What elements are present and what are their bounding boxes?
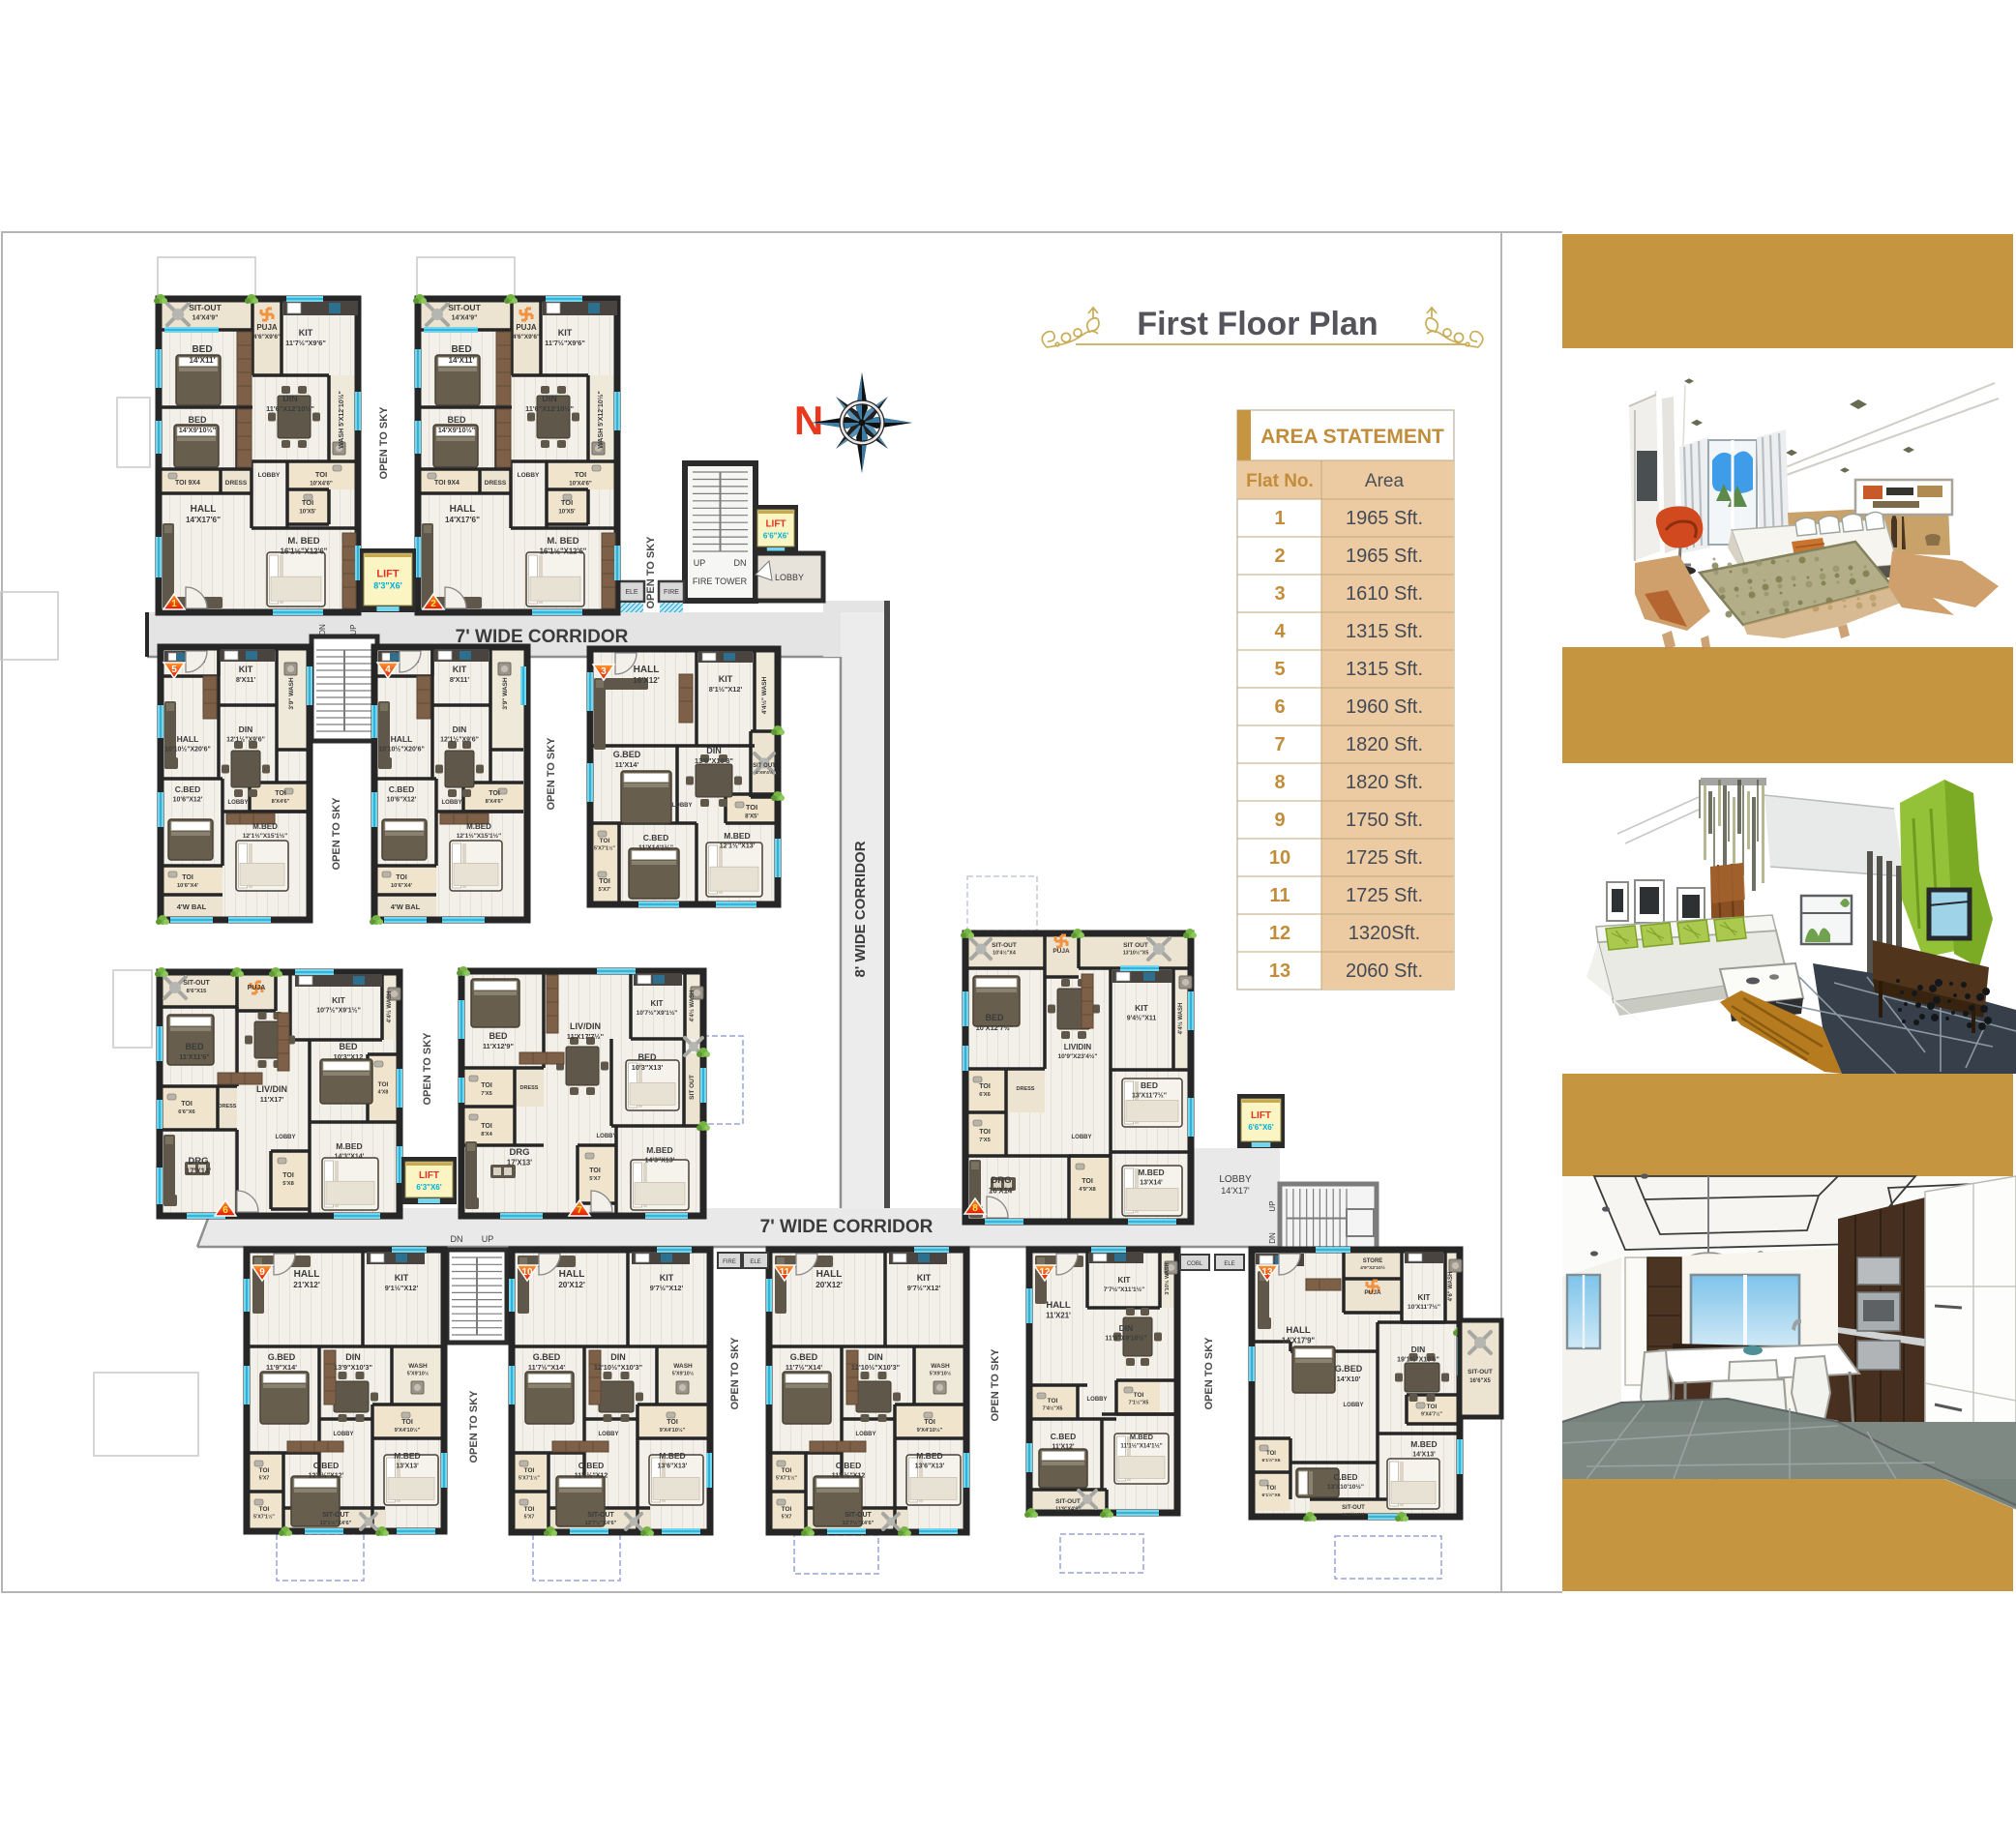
svg-text:SIT-OUT: SIT-OUT xyxy=(183,980,210,987)
svg-text:6'X6: 6'X6 xyxy=(979,1092,991,1098)
svg-text:AREA STATEMENT: AREA STATEMENT xyxy=(1260,426,1444,448)
svg-text:SIT OUT: SIT OUT xyxy=(753,763,776,769)
svg-text:PUJA: PUJA xyxy=(1052,948,1070,955)
svg-text:TOI: TOI xyxy=(1082,1178,1093,1185)
svg-text:BED: BED xyxy=(185,1042,204,1051)
svg-text:C.BED: C.BED xyxy=(175,784,200,794)
svg-text:DN: DN xyxy=(451,1234,463,1244)
svg-text:OPEN TO SKY: OPEN TO SKY xyxy=(1203,1337,1215,1410)
svg-text:TOI: TOI xyxy=(481,1123,492,1130)
svg-text:TOI: TOI xyxy=(924,1419,935,1426)
svg-text:HALL: HALL xyxy=(294,1269,320,1280)
svg-text:9'X4'10½": 9'X4'10½" xyxy=(917,1427,943,1434)
svg-text:TOI: TOI xyxy=(1266,1486,1276,1492)
svg-text:1320Sft.: 1320Sft. xyxy=(1349,923,1421,944)
svg-text:LIVIDIN: LIVIDIN xyxy=(1064,1043,1092,1051)
svg-text:12'10½"X10'3": 12'10½"X10'3" xyxy=(851,1363,901,1372)
svg-text:LIV/DIN: LIV/DIN xyxy=(256,1084,287,1094)
svg-text:9'7½"X12': 9'7½"X12' xyxy=(907,1284,941,1292)
svg-text:TOI: TOI xyxy=(575,470,586,479)
svg-text:KIT: KIT xyxy=(1418,1293,1431,1302)
svg-text:C.BED: C.BED xyxy=(643,833,668,843)
svg-text:TOI: TOI xyxy=(401,1419,413,1426)
svg-text:N: N xyxy=(794,398,823,443)
svg-text:8'X4: 8'X4 xyxy=(481,1132,492,1138)
svg-text:4'4½ WASH: 4'4½ WASH xyxy=(386,991,393,1023)
svg-text:5: 5 xyxy=(1274,659,1285,680)
svg-text:TOI: TOI xyxy=(1134,1392,1144,1399)
svg-text:4'4½ WASH: 4'4½ WASH xyxy=(1177,1003,1184,1035)
svg-text:M.BED: M.BED xyxy=(1410,1439,1437,1449)
svg-text:10'6"X12': 10'6"X12' xyxy=(173,797,203,804)
svg-text:M.BED: M.BED xyxy=(466,822,491,831)
svg-text:12'1½"X12': 12'1½"X12' xyxy=(309,1472,344,1480)
svg-text:3'9" WASH: 3'9" WASH xyxy=(288,677,295,709)
svg-text:10'X4'6": 10'X4'6" xyxy=(310,481,333,488)
svg-text:10'6"X4': 10'6"X4' xyxy=(391,883,413,889)
svg-text:TOI: TOI xyxy=(589,1168,601,1174)
svg-text:14'3"X14': 14'3"X14' xyxy=(335,1154,365,1161)
svg-text:11'7½"X9'6": 11'7½"X9'6" xyxy=(285,339,326,347)
svg-text:11'X21': 11'X21' xyxy=(1046,1312,1071,1320)
svg-text:9'7½"X12': 9'7½"X12' xyxy=(650,1284,684,1292)
svg-text:FIRE: FIRE xyxy=(664,589,679,596)
svg-text:DIN: DIN xyxy=(345,1352,361,1362)
svg-text:LOBBY: LOBBY xyxy=(599,1432,619,1437)
svg-text:12'1½"X15'1½": 12'1½"X15'1½" xyxy=(457,832,501,840)
svg-text:10'X11'7½": 10'X11'7½" xyxy=(1408,1303,1440,1311)
svg-text:13'10½"X5: 13'10½"X5 xyxy=(1123,950,1149,957)
svg-text:LOBBY: LOBBY xyxy=(775,573,804,582)
svg-text:ELE: ELE xyxy=(625,589,638,596)
svg-text:C.BED: C.BED xyxy=(578,1461,604,1470)
svg-text:16'X14': 16'X14' xyxy=(989,1187,1014,1196)
svg-text:4'6" WASH: 4'6" WASH xyxy=(1448,1272,1454,1302)
svg-text:M.BED: M.BED xyxy=(336,1141,362,1151)
svg-text:DRG: DRG xyxy=(188,1156,208,1167)
svg-text:M.BED: M.BED xyxy=(394,1451,420,1461)
svg-text:8'X5': 8'X5' xyxy=(745,813,758,820)
svg-text:DIN: DIN xyxy=(706,746,722,755)
svg-text:BED: BED xyxy=(637,1052,657,1062)
svg-text:7'4½"X5: 7'4½"X5 xyxy=(1043,1405,1063,1412)
svg-text:UP: UP xyxy=(349,624,358,635)
svg-text:17'X13': 17'X13' xyxy=(507,1159,532,1168)
svg-text:3'10½ WASH: 3'10½ WASH xyxy=(1164,1262,1171,1294)
svg-text:8'X4'6": 8'X4'6" xyxy=(486,799,504,805)
svg-text:12'1½"X13': 12'1½"X13' xyxy=(720,843,756,850)
svg-text:11'X12': 11'X12' xyxy=(1052,1444,1074,1451)
svg-text:DN: DN xyxy=(318,624,327,636)
svg-text:TOI 9X4: TOI 9X4 xyxy=(175,480,200,487)
svg-text:UP: UP xyxy=(1268,1200,1277,1211)
svg-text:14'X9'10½": 14'X9'10½" xyxy=(438,426,476,434)
svg-text:DRESS: DRESS xyxy=(219,1104,237,1109)
svg-text:DIN: DIN xyxy=(1119,1323,1134,1333)
svg-text:1960 Sft.: 1960 Sft. xyxy=(1346,696,1423,718)
svg-text:M.BED: M.BED xyxy=(1138,1168,1164,1177)
svg-text:TOI: TOI xyxy=(275,790,286,797)
svg-text:C.BED: C.BED xyxy=(313,1461,339,1470)
svg-text:9: 9 xyxy=(259,1267,265,1278)
svg-text:SIT-OUT: SIT-OUT xyxy=(587,1512,614,1519)
svg-text:14'X4'9": 14'X4'9" xyxy=(193,315,219,322)
svg-text:14'X17'6": 14'X17'6" xyxy=(445,516,480,524)
svg-text:M.BED: M.BED xyxy=(646,1145,672,1155)
svg-text:C.BED: C.BED xyxy=(1334,1473,1358,1482)
svg-text:DN: DN xyxy=(1268,1232,1277,1244)
svg-text:Flat No.: Flat No. xyxy=(1246,471,1314,491)
svg-text:LOBBY: LOBBY xyxy=(518,472,540,479)
svg-text:2: 2 xyxy=(430,599,436,609)
svg-text:BED: BED xyxy=(188,415,207,425)
svg-text:1: 1 xyxy=(171,599,177,609)
svg-text:11'1½"X12: 11'1½"X12 xyxy=(832,1472,866,1480)
svg-text:10'X4'6": 10'X4'6" xyxy=(569,481,592,488)
svg-text:7'1½"X5: 7'1½"X5 xyxy=(1129,1400,1149,1406)
svg-text:4: 4 xyxy=(1274,621,1286,642)
svg-text:6'6"X6': 6'6"X6' xyxy=(1248,1123,1273,1132)
svg-text:12'7½"X4'6": 12'7½"X4'6" xyxy=(843,1520,875,1526)
svg-text:1820 Sft.: 1820 Sft. xyxy=(1346,734,1423,755)
svg-text:LIFT: LIFT xyxy=(376,569,399,580)
svg-text:LOBBY: LOBBY xyxy=(442,800,462,806)
svg-text:13: 13 xyxy=(1261,1267,1273,1278)
svg-text:7' WIDE CORRIDOR: 7' WIDE CORRIDOR xyxy=(760,1217,934,1237)
svg-text:13'6"X13': 13'6"X13' xyxy=(915,1463,945,1470)
svg-text:10'3"X13': 10'3"X13' xyxy=(632,1063,664,1072)
svg-text:TOI: TOI xyxy=(667,1419,678,1426)
svg-text:TOI: TOI xyxy=(282,1172,294,1179)
svg-text:16'1½"X12'6": 16'1½"X12'6" xyxy=(281,547,328,556)
svg-text:DIN: DIN xyxy=(239,724,253,734)
svg-text:TOI: TOI xyxy=(1266,1451,1276,1457)
svg-text:8'X4'6": 8'X4'6" xyxy=(272,799,290,805)
svg-text:SIT-OUT: SIT-OUT xyxy=(448,303,481,312)
svg-text:FIRE: FIRE xyxy=(723,1259,736,1265)
svg-text:TOI: TOI xyxy=(782,1506,792,1513)
svg-text:DIN: DIN xyxy=(542,394,557,403)
svg-text:9'X4'7½": 9'X4'7½" xyxy=(1421,1411,1442,1418)
svg-text:10: 10 xyxy=(1269,847,1290,869)
svg-text:12'1½"X4'6": 12'1½"X4'6" xyxy=(320,1520,352,1526)
svg-text:BED: BED xyxy=(339,1042,358,1051)
svg-text:4'W BAL: 4'W BAL xyxy=(177,902,207,911)
svg-text:6: 6 xyxy=(1274,696,1285,718)
svg-text:12'1½"X9'6": 12'1½"X9'6" xyxy=(226,736,265,744)
svg-text:OPEN TO SKY: OPEN TO SKY xyxy=(645,536,657,609)
svg-text:8: 8 xyxy=(972,1203,978,1214)
svg-text:SIT OUT: SIT OUT xyxy=(689,1075,696,1100)
svg-text:TOI: TOI xyxy=(524,1506,535,1513)
svg-text:20'X12': 20'X12' xyxy=(815,1281,843,1289)
svg-text:First Floor Plan: First Floor Plan xyxy=(1137,306,1378,342)
svg-text:13'6"X13': 13'6"X13' xyxy=(658,1463,688,1470)
svg-text:10'X5': 10'X5' xyxy=(299,509,316,516)
svg-text:KIT: KIT xyxy=(719,674,733,684)
svg-text:9'X4'10½": 9'X4'10½" xyxy=(660,1427,686,1434)
svg-text:9'1½"X12': 9'1½"X12' xyxy=(385,1284,419,1292)
svg-text:TOI: TOI xyxy=(561,498,573,507)
svg-text:1610 Sft.: 1610 Sft. xyxy=(1346,583,1423,605)
svg-text:11'X14': 11'X14' xyxy=(615,760,639,769)
svg-text:OPEN TO SKY: OPEN TO SKY xyxy=(468,1390,480,1463)
svg-text:7'7½"X11'1½": 7'7½"X11'1½" xyxy=(1104,1286,1144,1293)
svg-text:TOI: TOI xyxy=(489,790,500,797)
svg-text:BED: BED xyxy=(451,344,471,355)
svg-text:TOI: TOI xyxy=(396,874,407,881)
svg-text:10'7½"X9'1½": 10'7½"X9'1½" xyxy=(637,1009,678,1017)
svg-text:TOI 9X4: TOI 9X4 xyxy=(434,480,460,487)
svg-text:16'1½"X12'6": 16'1½"X12'6" xyxy=(540,547,587,556)
svg-text:20'X12': 20'X12' xyxy=(558,1281,585,1289)
svg-text:LIFT: LIFT xyxy=(419,1170,439,1181)
svg-text:11'X17': 11'X17' xyxy=(260,1095,284,1104)
svg-text:4'9"X8: 4'9"X8 xyxy=(1079,1187,1096,1193)
svg-text:G.BED: G.BED xyxy=(613,750,641,759)
svg-text:DRESS: DRESS xyxy=(1017,1086,1035,1092)
svg-text:5'X7'1½": 5'X7'1½" xyxy=(253,1514,275,1521)
svg-text:LIFT: LIFT xyxy=(765,519,786,530)
svg-text:11'7½"X14': 11'7½"X14' xyxy=(786,1363,822,1372)
svg-text:4'6"X9'6": 4'6"X9'6" xyxy=(513,334,540,340)
svg-text:14'X10': 14'X10' xyxy=(1337,1375,1361,1383)
svg-text:DRG: DRG xyxy=(509,1147,529,1158)
svg-text:TOI: TOI xyxy=(182,874,193,881)
svg-text:11'9"X14': 11'9"X14' xyxy=(266,1363,297,1372)
svg-text:14'X17'6": 14'X17'6" xyxy=(186,516,221,524)
svg-text:13'X11'7½": 13'X11'7½" xyxy=(1132,1092,1167,1100)
svg-text:10'4½"X4: 10'4½"X4 xyxy=(993,950,1016,957)
svg-text:7'X5: 7'X5 xyxy=(481,1091,492,1097)
svg-text:BED: BED xyxy=(985,1013,1004,1022)
svg-text:KIT: KIT xyxy=(299,328,313,338)
svg-text:1315 Sft.: 1315 Sft. xyxy=(1346,621,1423,642)
svg-text:LOBBY: LOBBY xyxy=(276,1135,296,1140)
svg-text:WASH 5'X12'10½": WASH 5'X12'10½" xyxy=(597,391,605,449)
svg-text:M.BED: M.BED xyxy=(1130,1433,1154,1441)
svg-text:1750 Sft.: 1750 Sft. xyxy=(1346,810,1423,831)
svg-text:COBL: COBL xyxy=(1187,1261,1203,1267)
svg-text:KIT: KIT xyxy=(1135,1003,1149,1013)
svg-text:LOBBY: LOBBY xyxy=(1087,1397,1108,1403)
svg-text:11'X17'7½": 11'X17'7½" xyxy=(567,1032,605,1041)
svg-text:12'10½"X10'3": 12'10½"X10'3" xyxy=(594,1363,643,1372)
svg-text:HALL: HALL xyxy=(450,504,476,515)
svg-text:10'X12'7½": 10'X12'7½" xyxy=(976,1023,1014,1032)
svg-text:6'1½"X6: 6'1½"X6 xyxy=(1261,1492,1280,1498)
svg-text:6'6"X6': 6'6"X6' xyxy=(763,532,788,541)
svg-text:LOBBY: LOBBY xyxy=(1219,1174,1252,1185)
svg-text:1725 Sft.: 1725 Sft. xyxy=(1346,847,1423,869)
svg-text:11'7½"X14': 11'7½"X14' xyxy=(528,1363,565,1372)
svg-text:11'9"X4'6": 11'9"X4'6" xyxy=(1055,1507,1081,1513)
svg-text:LOBBY: LOBBY xyxy=(856,1432,876,1437)
svg-text:OPEN TO SKY: OPEN TO SKY xyxy=(331,797,342,871)
svg-text:LIV/DIN: LIV/DIN xyxy=(570,1021,601,1031)
svg-text:5'X7: 5'X7 xyxy=(782,1515,792,1521)
svg-text:5'X7'1½": 5'X7'1½" xyxy=(594,845,615,852)
svg-text:8' WIDE CORRIDOR: 8' WIDE CORRIDOR xyxy=(852,841,869,977)
svg-text:Area: Area xyxy=(1365,471,1405,491)
svg-text:TOI: TOI xyxy=(746,803,757,812)
svg-text:13'X10'10½": 13'X10'10½" xyxy=(1327,1483,1364,1491)
svg-text:2: 2 xyxy=(1274,546,1285,567)
svg-text:M.BED: M.BED xyxy=(916,1451,942,1461)
svg-text:PUJA: PUJA xyxy=(248,985,266,991)
svg-text:12: 12 xyxy=(1039,1267,1051,1278)
svg-text:C.BED: C.BED xyxy=(389,784,414,794)
svg-text:7: 7 xyxy=(577,1205,582,1216)
svg-text:11'X12'9": 11'X12'9" xyxy=(483,1042,515,1050)
svg-text:14'X13': 14'X13' xyxy=(1412,1452,1436,1459)
svg-text:DN: DN xyxy=(734,558,747,568)
svg-text:11: 11 xyxy=(1269,885,1290,906)
svg-text:LOBBY: LOBBY xyxy=(672,803,693,809)
svg-text:WASH: WASH xyxy=(408,1363,428,1370)
svg-text:5'X7': 5'X7' xyxy=(599,887,612,893)
svg-text:TOI: TOI xyxy=(979,1129,991,1136)
svg-text:TOI: TOI xyxy=(302,498,313,507)
svg-text:BED: BED xyxy=(1141,1080,1158,1090)
svg-text:11'7½"X9'6": 11'7½"X9'6" xyxy=(545,339,585,347)
svg-text:OPEN TO SKY: OPEN TO SKY xyxy=(729,1337,741,1410)
svg-text:5'X7: 5'X7 xyxy=(259,1476,270,1482)
svg-text:13'9"X10'3": 13'9"X10'3" xyxy=(334,1363,373,1372)
svg-text:SIT-OUT: SIT-OUT xyxy=(992,942,1017,949)
svg-text:DRESS: DRESS xyxy=(520,1085,539,1091)
svg-text:17'X14': 17'X14' xyxy=(186,1168,211,1176)
svg-text:10'7½"X9'1½": 10'7½"X9'1½" xyxy=(316,1007,361,1015)
svg-text:LOBBY: LOBBY xyxy=(258,472,281,479)
svg-text:M. BED: M. BED xyxy=(287,536,319,547)
svg-text:6'6"X6: 6'6"X6 xyxy=(178,1109,194,1115)
svg-text:WASH 5'X12'10½": WASH 5'X12'10½" xyxy=(338,391,345,449)
svg-text:HALL: HALL xyxy=(1046,1300,1071,1311)
svg-text:11'6"X12'10½": 11'6"X12'10½" xyxy=(525,404,574,413)
svg-text:10'10½"X20'6": 10'10½"X20'6" xyxy=(164,746,211,754)
svg-text:5'X7: 5'X7 xyxy=(589,1176,601,1182)
svg-text:5'X9'10½: 5'X9'10½ xyxy=(930,1371,952,1377)
svg-text:KIT: KIT xyxy=(660,1273,674,1283)
svg-text:M.BED: M.BED xyxy=(252,822,278,831)
svg-text:HALL: HALL xyxy=(391,734,413,744)
svg-text:TOI: TOI xyxy=(315,470,327,479)
svg-text:8'6"X15: 8'6"X15 xyxy=(187,989,207,994)
svg-text:FIRE TOWER: FIRE TOWER xyxy=(693,577,748,586)
svg-text:OPEN TO SKY: OPEN TO SKY xyxy=(422,1032,433,1106)
svg-text:KIT: KIT xyxy=(1118,1276,1131,1285)
svg-text:G.BED: G.BED xyxy=(790,1352,818,1362)
svg-text:C.BED: C.BED xyxy=(1051,1432,1076,1441)
svg-text:10: 10 xyxy=(521,1267,533,1278)
svg-text:4'6"X9'6": 4'6"X9'6" xyxy=(253,334,281,340)
svg-text:SIT-OUT: SIT-OUT xyxy=(1468,1369,1493,1375)
svg-text:HALL: HALL xyxy=(559,1269,585,1280)
svg-text:10'10½"X20'6": 10'10½"X20'6" xyxy=(378,746,425,754)
svg-text:SIT-OUT: SIT-OUT xyxy=(1055,1498,1081,1505)
svg-text:5'X8: 5'X8 xyxy=(282,1181,294,1187)
svg-text:SIT-OUT: SIT-OUT xyxy=(189,303,222,312)
svg-text:DIN: DIN xyxy=(610,1352,626,1362)
svg-text:UP: UP xyxy=(694,558,706,568)
svg-text:KIT: KIT xyxy=(558,328,573,338)
svg-text:11'1½"X12: 11'1½"X12 xyxy=(575,1472,608,1480)
svg-text:OPEN TO SKY: OPEN TO SKY xyxy=(990,1348,1001,1422)
svg-text:KIT: KIT xyxy=(651,999,664,1008)
svg-text:LOBBY: LOBBY xyxy=(597,1134,617,1139)
svg-text:21'X12': 21'X12' xyxy=(293,1281,320,1289)
svg-text:BED: BED xyxy=(192,344,212,355)
svg-text:13'6"X10'3": 13'6"X10'3" xyxy=(695,756,734,765)
svg-text:3'9" WASH: 3'9" WASH xyxy=(502,677,509,709)
svg-text:C.BED: C.BED xyxy=(836,1461,861,1470)
svg-text:DRESS: DRESS xyxy=(485,480,507,487)
svg-text:KIT: KIT xyxy=(239,665,253,674)
svg-text:6'1½"X6: 6'1½"X6 xyxy=(1261,1457,1280,1463)
svg-text:3: 3 xyxy=(1274,583,1285,605)
svg-text:HALL: HALL xyxy=(1286,1325,1311,1336)
svg-text:TOI: TOI xyxy=(1048,1398,1058,1404)
svg-text:16'X12': 16'X12' xyxy=(633,676,660,685)
svg-text:SIT-OUT: SIT-OUT xyxy=(1342,1505,1365,1511)
svg-text:8: 8 xyxy=(1274,772,1285,793)
svg-text:ELE: ELE xyxy=(750,1259,760,1265)
svg-text:DIN: DIN xyxy=(282,394,298,403)
svg-text:12: 12 xyxy=(1269,923,1290,944)
svg-text:ELE: ELE xyxy=(1224,1261,1234,1267)
svg-text:DIN: DIN xyxy=(1411,1345,1426,1354)
svg-text:PUJA: PUJA xyxy=(516,323,537,332)
svg-text:12'1½"X15'1½": 12'1½"X15'1½" xyxy=(243,832,287,840)
svg-text:7'X5: 7'X5 xyxy=(979,1138,991,1143)
svg-text:5'X9'10½: 5'X9'10½ xyxy=(672,1371,695,1377)
svg-text:G.BED: G.BED xyxy=(1335,1364,1363,1374)
svg-text:G.BED: G.BED xyxy=(268,1352,296,1362)
svg-text:8'X11': 8'X11' xyxy=(236,675,256,684)
svg-text:10'X5': 10'X5' xyxy=(558,509,576,516)
svg-text:14'X11': 14'X11' xyxy=(448,356,474,365)
svg-text:SIT-OUT: SIT-OUT xyxy=(845,1512,872,1519)
svg-text:13: 13 xyxy=(1269,961,1290,982)
svg-text:M.BED: M.BED xyxy=(659,1451,685,1461)
svg-text:9: 9 xyxy=(1274,810,1285,831)
svg-text:LOBBY: LOBBY xyxy=(228,800,249,806)
svg-text:16'6"X5: 16'6"X5 xyxy=(1469,1378,1491,1384)
svg-text:KIT: KIT xyxy=(453,665,467,674)
svg-text:11: 11 xyxy=(780,1267,790,1278)
svg-text:TOI: TOI xyxy=(378,1081,389,1088)
svg-text:4: 4 xyxy=(385,665,391,675)
svg-text:8'1½"X12': 8'1½"X12' xyxy=(709,685,743,694)
svg-text:2060 Sft.: 2060 Sft. xyxy=(1346,961,1423,982)
svg-text:14'X9'10½": 14'X9'10½" xyxy=(179,426,217,434)
svg-text:4'4½ WASH: 4'4½ WASH xyxy=(689,990,696,1022)
svg-text:5'X9'10½: 5'X9'10½ xyxy=(407,1371,430,1377)
svg-text:M. BED: M. BED xyxy=(547,536,578,547)
svg-text:1820 Sft.: 1820 Sft. xyxy=(1346,772,1423,793)
svg-text:WASH: WASH xyxy=(931,1363,950,1370)
svg-text:4'4½" WASH: 4'4½" WASH xyxy=(760,676,768,714)
svg-text:WASH: WASH xyxy=(673,1363,693,1370)
svg-text:19'1½"X10'6": 19'1½"X10'6" xyxy=(1397,1356,1439,1364)
svg-text:11'X14'1½": 11'X14'1½" xyxy=(638,844,673,852)
svg-text:13'X14': 13'X14' xyxy=(1140,1180,1163,1187)
svg-text:SIT OUT: SIT OUT xyxy=(1123,942,1148,949)
svg-text:TOI: TOI xyxy=(782,1467,792,1474)
svg-text:4'X8: 4'X8 xyxy=(378,1090,389,1096)
svg-text:TOI: TOI xyxy=(979,1083,991,1090)
